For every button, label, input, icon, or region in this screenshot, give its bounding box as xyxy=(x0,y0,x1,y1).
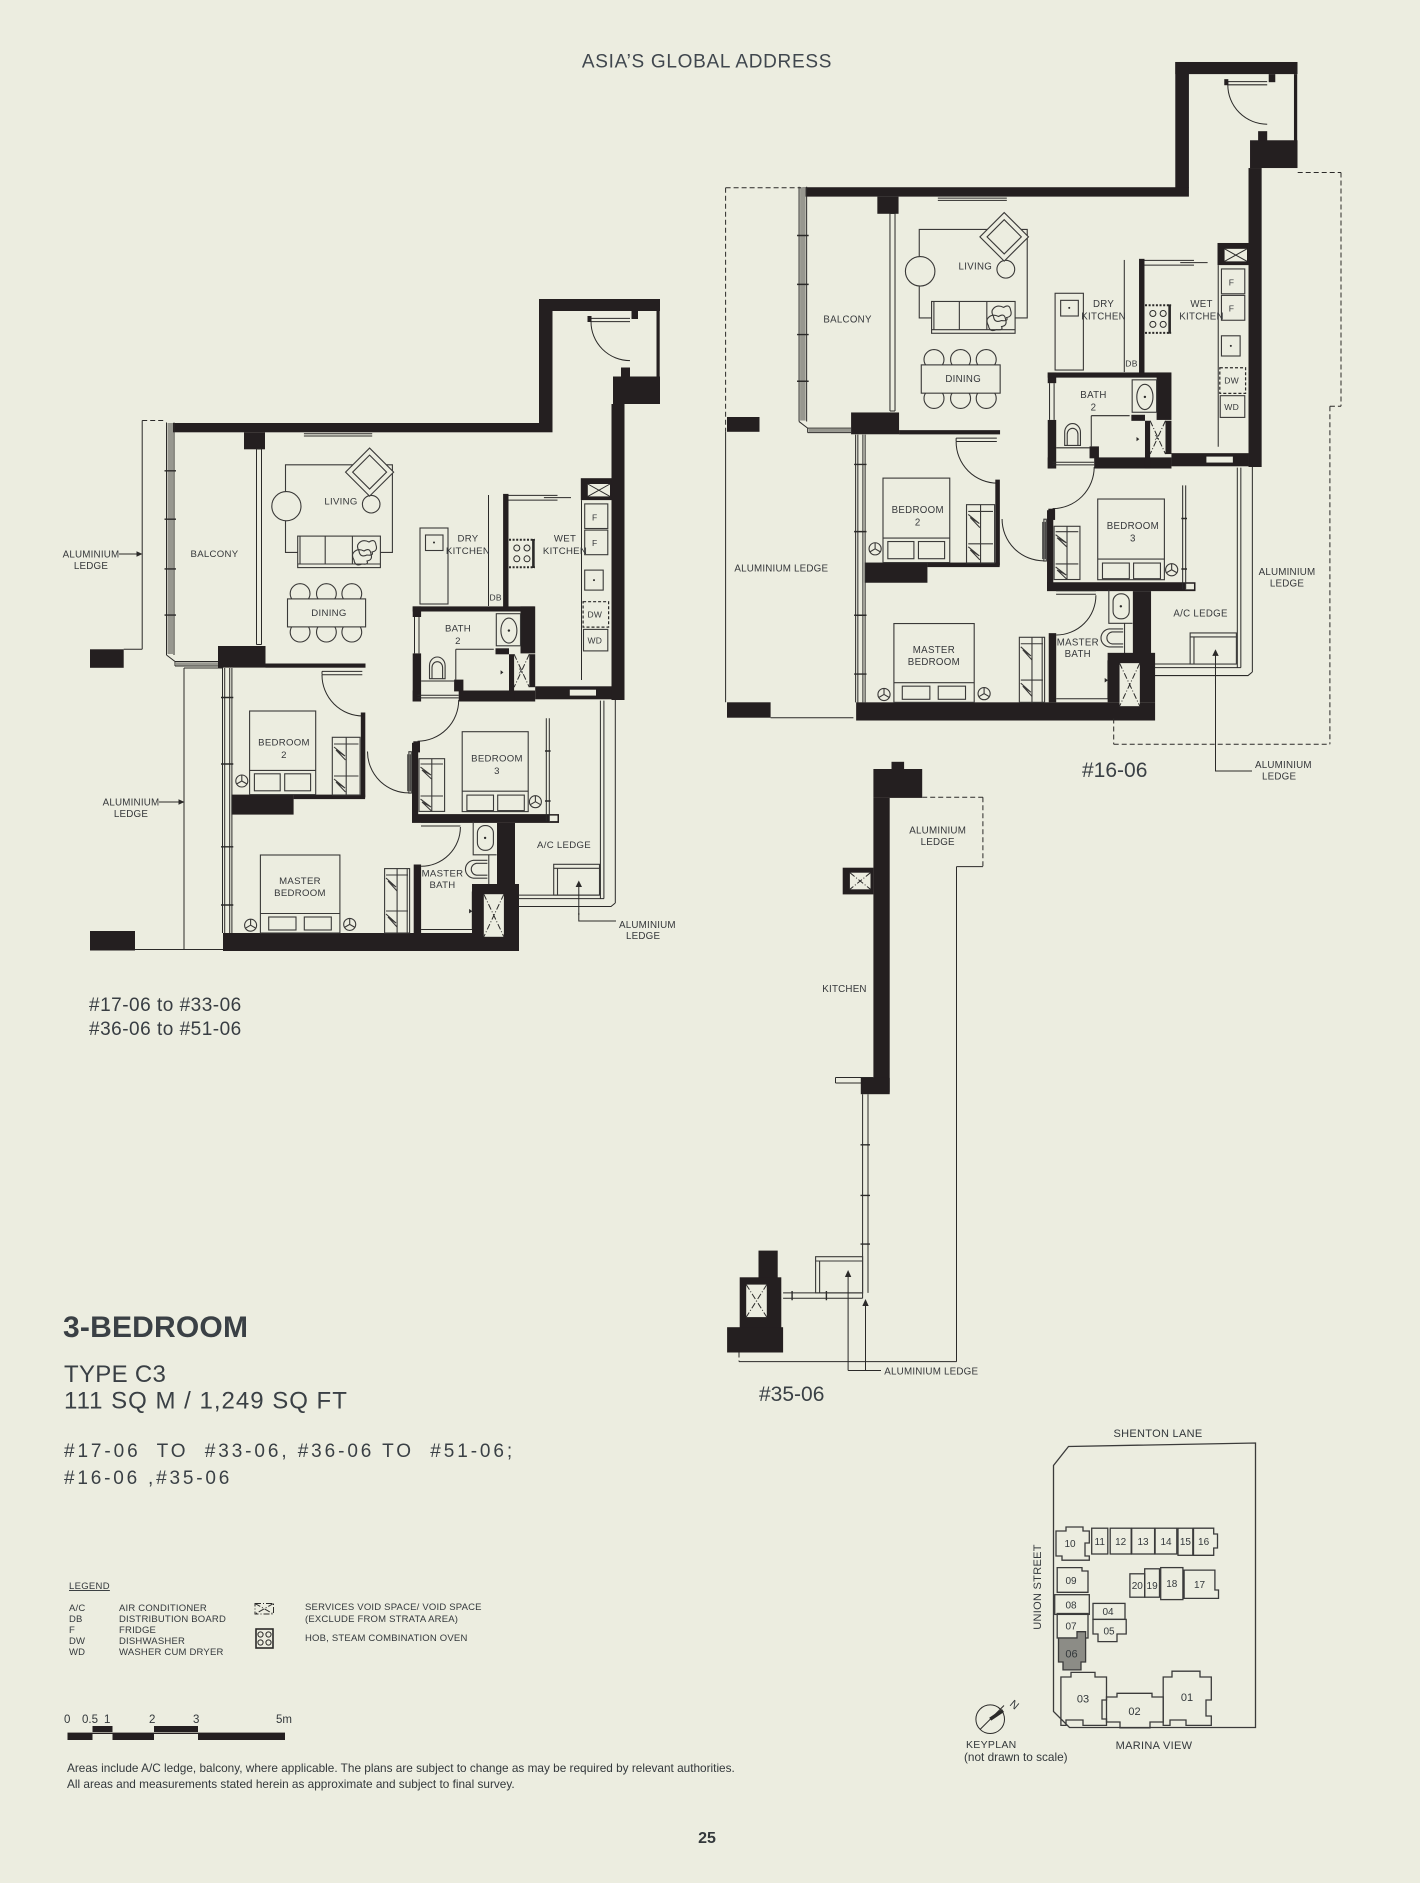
svg-text:WET: WET xyxy=(554,534,576,545)
svg-text:AIR CONDITIONER: AIR CONDITIONER xyxy=(119,1603,207,1614)
svg-text:DW: DW xyxy=(69,1636,85,1647)
svg-text:ALUMINIUM: ALUMINIUM xyxy=(103,798,160,809)
svg-text:15: 15 xyxy=(1180,1537,1192,1548)
svg-text:LEDGE: LEDGE xyxy=(626,931,660,942)
svg-text:KITCHEN: KITCHEN xyxy=(543,546,587,557)
svg-text:5m: 5m xyxy=(276,1714,292,1726)
svg-text:MASTER: MASTER xyxy=(279,876,321,887)
svg-text:DB: DB xyxy=(69,1614,83,1625)
svg-text:WD: WD xyxy=(588,636,603,646)
svg-text:08: 08 xyxy=(1065,1601,1077,1612)
svg-text:BEDROOM: BEDROOM xyxy=(471,754,523,765)
svg-text:#17-06 to #33-06: #17-06 to #33-06 xyxy=(89,995,242,1016)
svg-text:ALUMINIUM LEDGE: ALUMINIUM LEDGE xyxy=(734,564,828,575)
svg-text:3: 3 xyxy=(193,1714,199,1726)
svg-text:19: 19 xyxy=(1147,1581,1159,1592)
svg-text:BALCONY: BALCONY xyxy=(191,549,239,560)
svg-text:All areas and measurements sta: All areas and measurements stated herein… xyxy=(67,1777,515,1791)
svg-text:LEDGE: LEDGE xyxy=(114,809,148,820)
svg-text:3: 3 xyxy=(494,766,500,777)
svg-text:04: 04 xyxy=(1102,1607,1114,1618)
svg-text:10: 10 xyxy=(1064,1539,1076,1550)
svg-text:DRY: DRY xyxy=(458,534,479,545)
svg-text:DISHWASHER: DISHWASHER xyxy=(119,1636,185,1647)
svg-text:LIVING: LIVING xyxy=(324,497,357,508)
svg-text:ALUMINIUM LEDGE: ALUMINIUM LEDGE xyxy=(884,1367,978,1378)
svg-text:25: 25 xyxy=(698,1830,716,1847)
svg-text:F: F xyxy=(592,513,597,523)
svg-text:12: 12 xyxy=(1115,1537,1127,1548)
svg-text:DW: DW xyxy=(588,610,603,620)
svg-text:LEDGE: LEDGE xyxy=(1262,772,1296,783)
svg-text:ASIA’S GLOBAL ADDRESS: ASIA’S GLOBAL ADDRESS xyxy=(582,52,832,73)
svg-text:06: 06 xyxy=(1065,1649,1077,1661)
svg-text:A/C: A/C xyxy=(69,1603,85,1614)
svg-text:0: 0 xyxy=(64,1714,70,1726)
svg-text:#16-06 ,#35-06: #16-06 ,#35-06 xyxy=(64,1468,232,1489)
svg-text:18: 18 xyxy=(1166,1579,1178,1590)
svg-text:#36-06 to #51-06: #36-06 to #51-06 xyxy=(89,1019,242,1040)
svg-text:F: F xyxy=(592,538,597,548)
svg-text:SERVICES VOID SPACE/ VOID SPAC: SERVICES VOID SPACE/ VOID SPACE xyxy=(305,1602,482,1613)
svg-text:2: 2 xyxy=(455,636,461,647)
svg-text:#17-06 TO #33-06, #36-06 TO: #17-06 TO #33-06, #36-06 TO #51-06; xyxy=(64,1441,515,1462)
svg-text:LEDGE: LEDGE xyxy=(74,561,108,572)
svg-text:F: F xyxy=(69,1625,75,1636)
svg-text:HOB, STEAM COMBINATION OVEN: HOB, STEAM COMBINATION OVEN xyxy=(305,1633,468,1644)
svg-text:BATH: BATH xyxy=(445,624,471,635)
svg-text:MARINA VIEW: MARINA VIEW xyxy=(1116,1740,1193,1752)
svg-text:(not drawn to scale): (not drawn to scale) xyxy=(964,1750,1068,1764)
svg-text:ALUMINIUM: ALUMINIUM xyxy=(1259,567,1316,578)
svg-text:A/C LEDGE: A/C LEDGE xyxy=(537,840,591,851)
svg-text:LEDGE: LEDGE xyxy=(1270,579,1304,590)
svg-text:UNION STREET: UNION STREET xyxy=(1032,1544,1044,1630)
svg-text:DINING: DINING xyxy=(311,608,346,619)
svg-text:03: 03 xyxy=(1077,1694,1089,1706)
svg-text:02: 02 xyxy=(1128,1706,1140,1718)
svg-text:ALUMINIUM: ALUMINIUM xyxy=(1255,760,1312,771)
svg-text:WD: WD xyxy=(69,1647,85,1658)
svg-text:WASHER CUM DRYER: WASHER CUM DRYER xyxy=(119,1647,224,1658)
svg-text:2: 2 xyxy=(281,750,287,761)
svg-text:DB: DB xyxy=(490,593,502,603)
svg-text:SHENTON LANE: SHENTON LANE xyxy=(1114,1428,1203,1440)
svg-text:3-BEDROOM: 3-BEDROOM xyxy=(63,1311,248,1344)
svg-text:X: X xyxy=(519,669,524,676)
svg-text:BEDROOM: BEDROOM xyxy=(258,738,310,749)
svg-text:0.5: 0.5 xyxy=(82,1714,98,1726)
svg-text:KITCHEN: KITCHEN xyxy=(446,546,490,557)
svg-text:LEDGE: LEDGE xyxy=(921,837,955,848)
svg-text:11: 11 xyxy=(1095,1537,1106,1548)
svg-text:ALUMINIUM: ALUMINIUM xyxy=(619,920,676,931)
svg-text:13: 13 xyxy=(1137,1537,1149,1548)
svg-text:TYPE C3: TYPE C3 xyxy=(64,1361,166,1388)
svg-text:(EXCLUDE FROM STRATA AREA): (EXCLUDE FROM STRATA AREA) xyxy=(305,1614,458,1625)
svg-text:#35-06: #35-06 xyxy=(759,1383,824,1406)
svg-text:01: 01 xyxy=(1181,1692,1193,1704)
svg-text:20: 20 xyxy=(1132,1581,1144,1592)
svg-text:07: 07 xyxy=(1065,1622,1077,1633)
svg-text:ALUMINIUM: ALUMINIUM xyxy=(63,550,120,561)
svg-text:BEDROOM: BEDROOM xyxy=(274,888,326,899)
svg-text:MASTER: MASTER xyxy=(422,869,464,880)
svg-text:DISTRIBUTION BOARD: DISTRIBUTION BOARD xyxy=(119,1614,226,1625)
svg-text:05: 05 xyxy=(1103,1627,1115,1638)
svg-text:KITCHEN: KITCHEN xyxy=(822,984,866,995)
svg-text:2: 2 xyxy=(149,1714,155,1726)
svg-text:09: 09 xyxy=(1065,1576,1077,1587)
svg-text:Areas include A/C ledge, balco: Areas include A/C ledge, balcony, where … xyxy=(67,1761,735,1775)
svg-text:#16-06: #16-06 xyxy=(1082,759,1147,782)
svg-text:BATH: BATH xyxy=(429,880,455,891)
svg-text:1: 1 xyxy=(104,1714,110,1726)
svg-text:14: 14 xyxy=(1160,1537,1172,1548)
svg-text:17: 17 xyxy=(1194,1580,1206,1591)
svg-text:LEGEND: LEGEND xyxy=(69,1581,110,1592)
svg-text:16: 16 xyxy=(1198,1537,1210,1548)
svg-text:111 SQ M / 1,249 SQ FT: 111 SQ M / 1,249 SQ FT xyxy=(64,1388,348,1415)
svg-text:ALUMINIUM: ALUMINIUM xyxy=(909,826,966,837)
svg-text:FRIDGE: FRIDGE xyxy=(119,1625,156,1636)
